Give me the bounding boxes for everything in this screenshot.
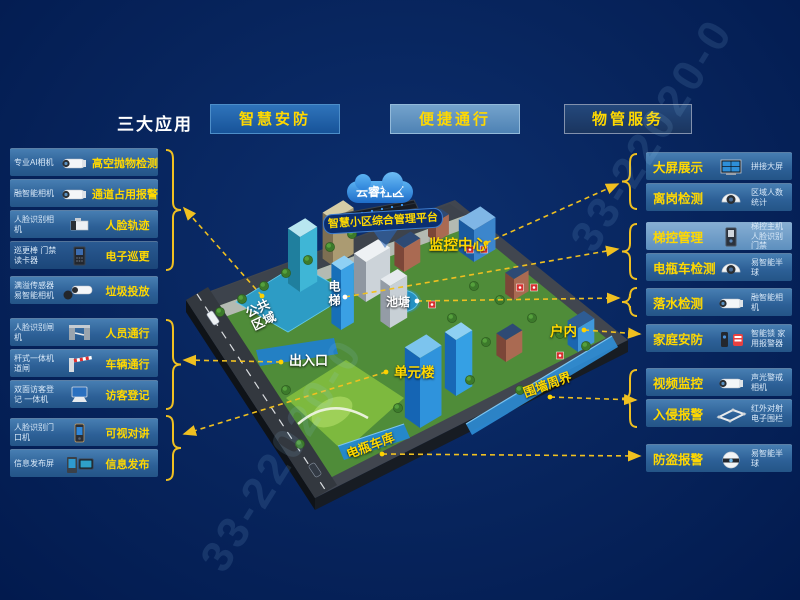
tree [281, 385, 290, 394]
group-brace [622, 154, 637, 209]
alert-marker [531, 284, 538, 291]
anchor-dot [415, 299, 420, 304]
alert-marker [429, 301, 436, 308]
connector-line [486, 184, 618, 243]
anchor-dot [343, 295, 348, 300]
alert-marker [517, 284, 524, 291]
group-brace [166, 416, 181, 480]
map-label-unit-building: 单元楼 [394, 361, 435, 381]
tree [581, 341, 590, 350]
tree [393, 403, 402, 412]
anchor-dot [548, 395, 553, 400]
smart-community-infographic: 33-22020-0 33-22020-0 [0, 0, 800, 600]
tree [447, 313, 456, 322]
map-label-monitoring-center: 监控中心 [429, 234, 487, 255]
tree [481, 337, 490, 346]
tree [325, 242, 334, 251]
tree [527, 313, 536, 322]
group-brace [166, 320, 181, 409]
tree [465, 375, 474, 384]
alert-marker [557, 352, 564, 359]
map-label-pond: 池塘 [386, 293, 410, 310]
group-brace [622, 224, 637, 279]
map-label-entrance: 出入口 [289, 350, 328, 369]
group-brace [622, 288, 637, 316]
tree [281, 268, 290, 277]
tree [303, 255, 312, 264]
tree [259, 281, 268, 290]
building [405, 334, 442, 428]
anchor-dot [384, 370, 389, 375]
anchor-dot [582, 328, 587, 333]
anchor-dot [380, 452, 385, 457]
tree [295, 439, 304, 448]
building [445, 322, 473, 396]
map-label-elevator: 电梯 [326, 280, 343, 308]
building [288, 218, 317, 292]
tree [469, 281, 478, 290]
group-brace [166, 150, 181, 270]
anchor-dot [279, 360, 284, 365]
group-brace [622, 370, 637, 427]
cloud-community-badge: 云睿社区 [347, 181, 413, 203]
map-label-indoor: 户内 [550, 320, 577, 340]
tree [237, 294, 246, 303]
tree [215, 307, 224, 316]
